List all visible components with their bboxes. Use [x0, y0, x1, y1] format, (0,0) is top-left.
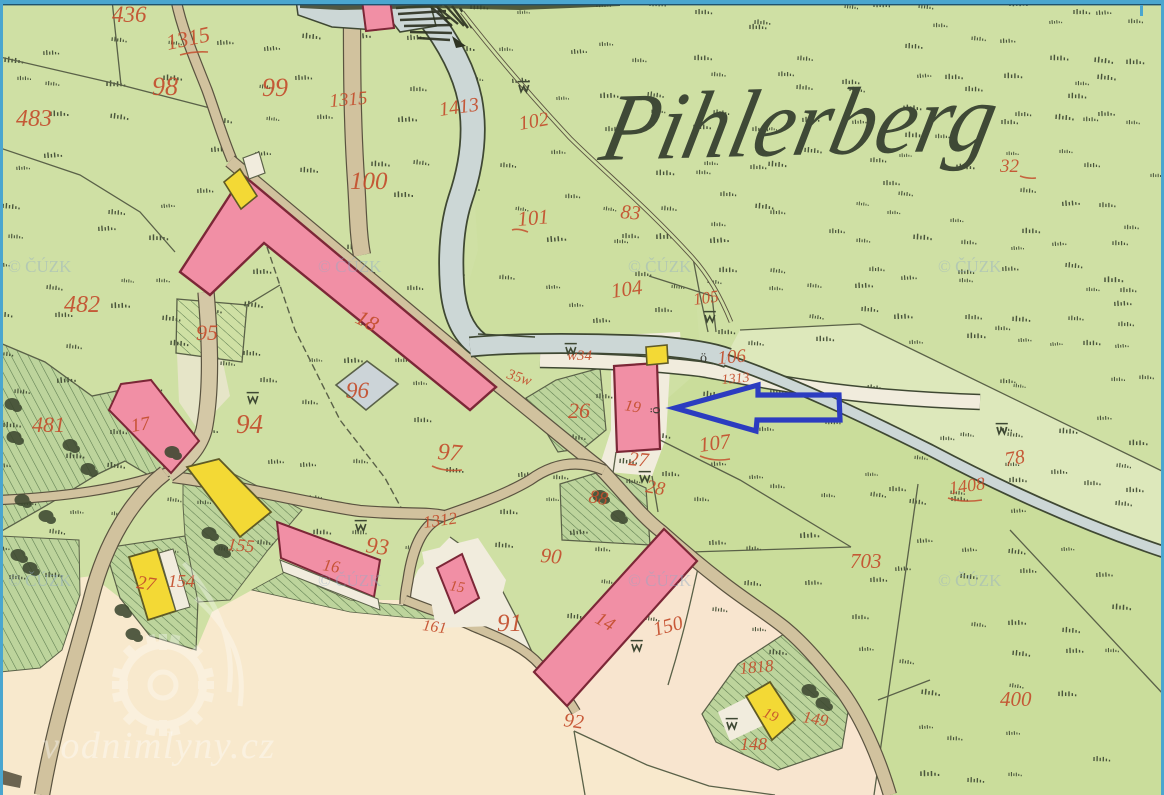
svg-text:400: 400 — [1000, 687, 1032, 711]
svg-text:106: 106 — [717, 346, 748, 369]
svg-text:vodnimlyny.cz: vodnimlyny.cz — [42, 725, 276, 767]
svg-text:155: 155 — [227, 534, 256, 556]
svg-text:© ČÚZK: © ČÚZK — [938, 571, 1002, 590]
svg-text:94: 94 — [236, 409, 263, 439]
svg-text:1313: 1313 — [721, 371, 750, 388]
svg-text:92: 92 — [562, 709, 585, 734]
svg-text:148: 148 — [740, 734, 767, 754]
svg-text:97: 97 — [436, 439, 463, 467]
svg-text:93: 93 — [364, 532, 390, 560]
svg-text:1818: 1818 — [739, 656, 775, 678]
svg-text:27: 27 — [628, 448, 651, 472]
svg-text:© ČÚZK: © ČÚZK — [318, 257, 382, 276]
svg-text:91: 91 — [497, 610, 522, 637]
svg-text:481: 481 — [32, 412, 65, 437]
svg-text:482: 482 — [64, 292, 100, 318]
svg-text:101: 101 — [516, 204, 549, 231]
svg-text:100: 100 — [350, 168, 388, 195]
svg-text:105: 105 — [692, 287, 720, 309]
svg-text:ö: ö — [700, 351, 707, 366]
svg-text:78: 78 — [1003, 446, 1027, 471]
svg-text:83: 83 — [620, 201, 642, 225]
svg-text:90: 90 — [540, 543, 564, 569]
svg-text:107: 107 — [697, 429, 733, 457]
svg-text:19: 19 — [623, 397, 642, 417]
svg-text:99: 99 — [262, 73, 288, 102]
svg-text:1315: 1315 — [329, 88, 369, 112]
svg-text:98: 98 — [152, 72, 178, 101]
svg-text:© ČÚZK: © ČÚZK — [628, 257, 692, 276]
svg-text:95: 95 — [196, 320, 218, 345]
svg-text:© ČÚZK: © ČÚZK — [8, 571, 72, 590]
svg-text:© ČÚZK: © ČÚZK — [8, 257, 72, 276]
svg-text:32: 32 — [999, 156, 1020, 177]
svg-text:104: 104 — [609, 275, 644, 303]
svg-text:483: 483 — [16, 106, 52, 132]
svg-text:436: 436 — [112, 2, 147, 27]
svg-text:161: 161 — [421, 617, 447, 637]
svg-text:w34: w34 — [567, 348, 593, 364]
svg-text:ö: ö — [648, 407, 664, 415]
svg-text:26: 26 — [568, 398, 590, 423]
svg-text:© ČÚZK: © ČÚZK — [938, 257, 1002, 276]
svg-text:© ČÚZK: © ČÚZK — [318, 571, 382, 590]
svg-text:© ČÚZK: © ČÚZK — [628, 571, 692, 590]
svg-text:96: 96 — [346, 378, 370, 403]
svg-text:703: 703 — [850, 549, 882, 573]
svg-text:Pihlerberg: Pihlerberg — [591, 65, 1008, 182]
